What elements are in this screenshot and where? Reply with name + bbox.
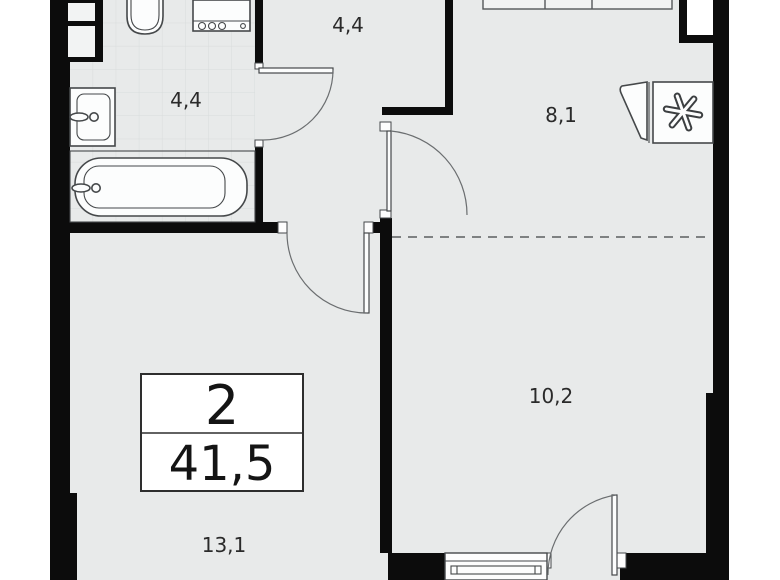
rooms-count: 2: [205, 374, 239, 437]
kitchen-counter: [483, 0, 672, 9]
toilet: [127, 0, 163, 34]
bedroom-zone-area-label: 10,2: [529, 384, 574, 408]
vent-shafts: [68, 3, 95, 57]
total-area: 41,5: [169, 436, 276, 492]
summary-box: 2 41,5: [141, 374, 303, 492]
window: [445, 553, 547, 580]
hallway-area-label: 4,4: [332, 13, 364, 37]
kitchen-area-label: 8,1: [545, 103, 577, 127]
outside-right: [729, 0, 780, 580]
living-zone-area-label: 13,1: [202, 533, 247, 557]
outside-left: [0, 0, 50, 580]
bathtub: [70, 151, 255, 222]
floor-plan-canvas: 4,4 4,4 8,1 10,2 13,1 2 41,5: [0, 0, 780, 580]
outside-notch: [687, 0, 713, 35]
washing-machine: [193, 0, 250, 31]
floor-plan: 4,4 4,4 8,1 10,2 13,1 2 41,5: [0, 0, 780, 580]
sink: [70, 88, 115, 146]
bathroom-area-label: 4,4: [170, 88, 202, 112]
